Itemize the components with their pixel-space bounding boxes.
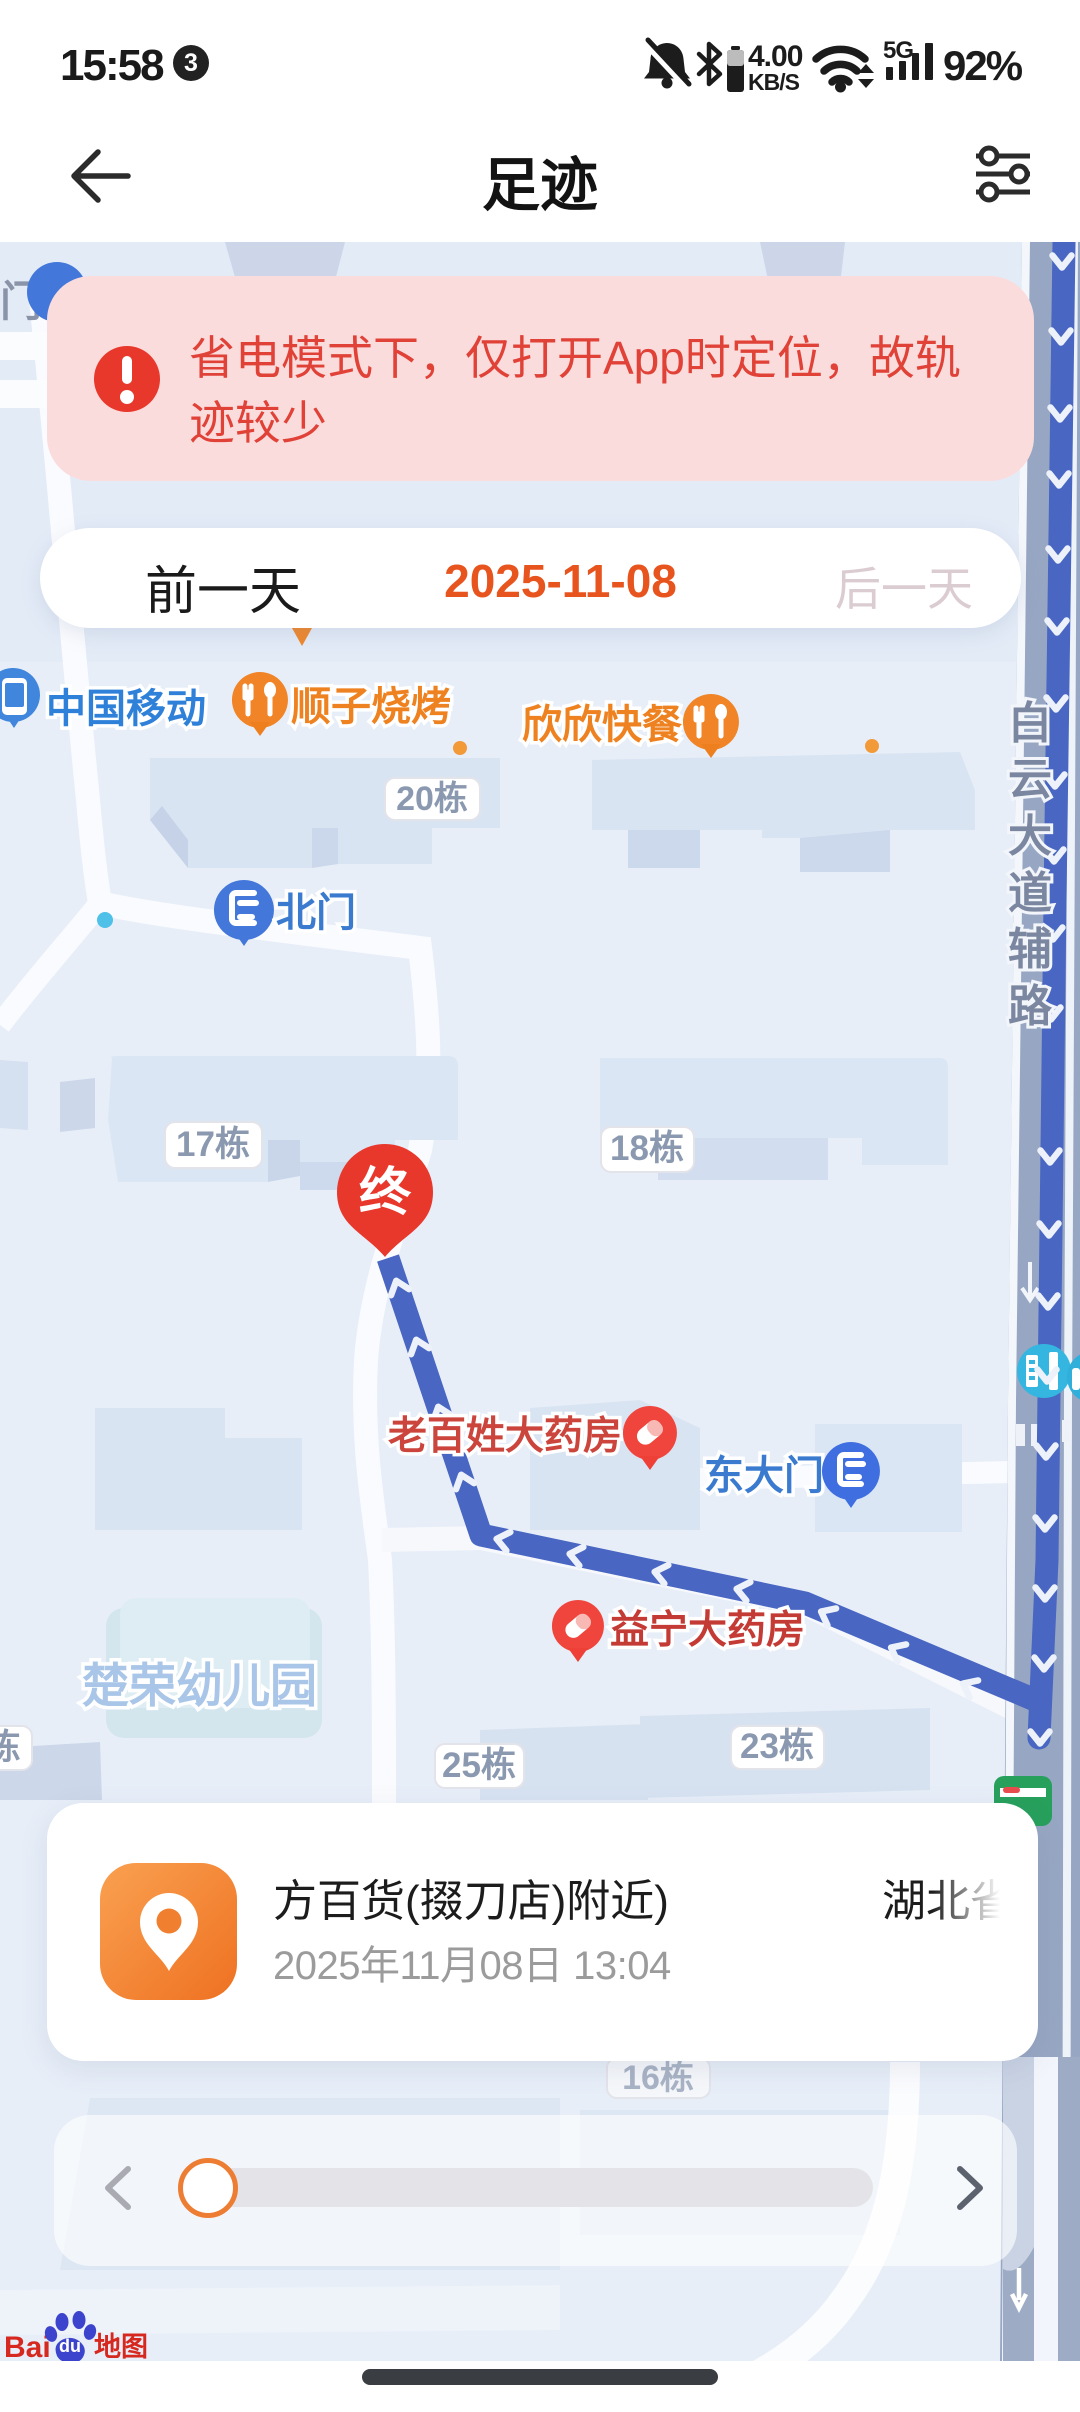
svg-text:16栋: 16栋 bbox=[622, 2059, 694, 2097]
svg-text:地图: 地图 bbox=[94, 2332, 148, 2361]
svg-text:东大门: 东大门 bbox=[704, 1454, 824, 1498]
svg-text:云: 云 bbox=[1008, 755, 1052, 804]
svg-text:Bai: Bai bbox=[4, 2331, 51, 2361]
svg-text:23栋: 23栋 bbox=[740, 1727, 814, 1766]
svg-text:顺子烧烤: 顺子烧烤 bbox=[291, 685, 451, 729]
svg-text:道: 道 bbox=[1008, 869, 1052, 918]
svg-text:KB/S: KB/S bbox=[748, 69, 800, 95]
svg-text:du: du bbox=[59, 2336, 81, 2356]
svg-text:老百姓大药房: 老百姓大药房 bbox=[388, 1415, 622, 1458]
svg-text:终: 终 bbox=[359, 1164, 412, 1222]
svg-text:路: 路 bbox=[1008, 982, 1053, 1031]
svg-text:欣欣快餐: 欣欣快餐 bbox=[522, 703, 682, 747]
svg-text:北门: 北门 bbox=[276, 891, 356, 935]
svg-text:18栋: 18栋 bbox=[610, 1129, 684, 1168]
svg-text:中国移动: 中国移动 bbox=[46, 687, 206, 731]
svg-text:5G: 5G bbox=[883, 37, 913, 64]
svg-text:辅: 辅 bbox=[1008, 925, 1052, 974]
svg-text:益宁大药房: 益宁大药房 bbox=[610, 1609, 805, 1652]
svg-text:92%: 92% bbox=[943, 42, 1023, 89]
svg-text:白: 白 bbox=[1008, 699, 1052, 748]
svg-text:25栋: 25栋 bbox=[442, 1746, 516, 1785]
svg-text:栋: 栋 bbox=[0, 1728, 21, 1767]
svg-text:大: 大 bbox=[1008, 812, 1052, 861]
svg-text:17栋: 17栋 bbox=[176, 1125, 250, 1164]
svg-text:20栋: 20栋 bbox=[396, 780, 468, 818]
svg-text:楚荣幼儿园: 楚荣幼儿园 bbox=[82, 1659, 317, 1712]
